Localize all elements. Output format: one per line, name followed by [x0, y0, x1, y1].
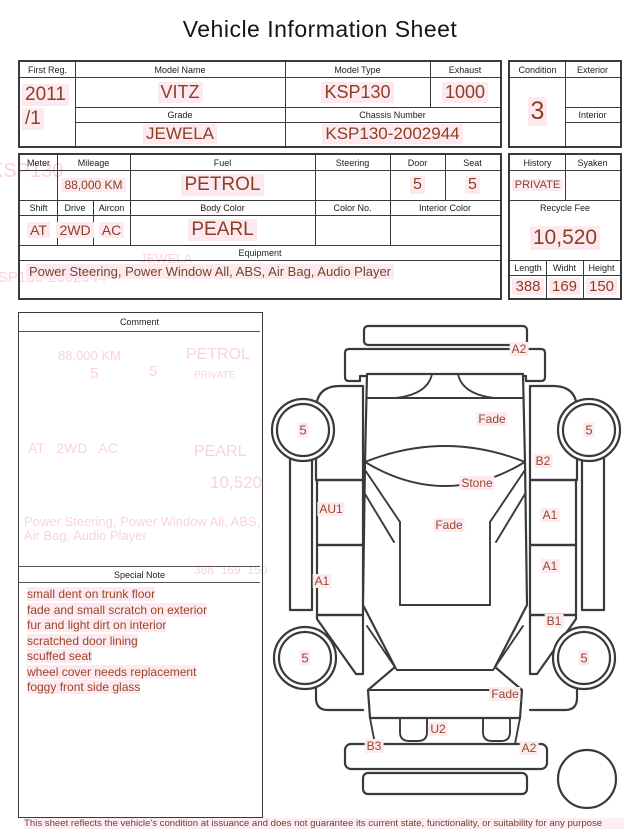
special-note-line: fade and small scratch on exterior: [27, 603, 255, 619]
special-note-line: scratched door lining: [27, 634, 255, 650]
model-type-value: KSP130: [285, 77, 430, 107]
damage-label-a1-rear-left-door: A1: [313, 574, 332, 588]
seat-label: Seat: [445, 155, 500, 170]
wheel-grade-front-right: 5: [583, 423, 594, 438]
color-no-label: Color No.: [315, 200, 390, 215]
model-name-value: VITZ: [75, 77, 285, 107]
damage-label-b1-rear-right-quarter: B1: [545, 614, 564, 628]
fuel-value: PETROL: [130, 170, 315, 200]
recycle-fee-label: Recycle Fee: [510, 200, 620, 215]
damage-label-b3-rear-bumper-left: B3: [365, 739, 384, 753]
interior-label: Interior: [565, 107, 620, 122]
history-label: History: [510, 155, 565, 170]
mileage-label: Mileage: [57, 155, 130, 170]
steering-value: [315, 170, 390, 200]
damage-label-fade-roof: Fade: [433, 518, 464, 532]
damage-label-a1-front-right-door: A1: [541, 508, 560, 522]
meter-label: Meter: [20, 155, 57, 170]
comment-body: [25, 337, 254, 349]
damage-label-a1-rear-right-door: A1: [541, 559, 560, 573]
damage-label-fade-hood: Fade: [476, 412, 507, 426]
vehicle-information-sheet: KSP130 KSP130-2002944 JEWELA 88,000 KM P…: [0, 0, 640, 835]
meter-value: [20, 170, 57, 200]
grade-value: JEWELA: [75, 122, 285, 146]
comment-box: Comment Special Note small dent on trunk…: [18, 312, 263, 818]
mileage-value: 88,000 KM: [57, 170, 130, 200]
special-note-line: wheel cover needs replacement: [27, 665, 255, 681]
damage-label-a2-rear-bumper-right: A2: [520, 741, 539, 755]
car-damage-diagram: A2 Fade 5 5 B2 Stone AU1 A1 Fade A1 A1 B…: [270, 310, 640, 810]
comment-header: Comment: [19, 314, 260, 329]
shift-label: Shift: [20, 200, 57, 215]
drive-value: 2WD: [57, 215, 93, 245]
height-value: 150: [583, 275, 620, 298]
exhaust-value: 1000: [430, 77, 500, 107]
body-color-value: PEARL: [130, 215, 315, 245]
damage-label-b2-front-right-fender: B2: [534, 454, 553, 468]
damage-label-fade-trunk: Fade: [489, 687, 520, 701]
model-name-label: Model Name: [75, 62, 285, 77]
first-reg-label: First Reg.: [20, 62, 75, 77]
equipment-value: Power Steering, Power Window All, ABS, A…: [26, 260, 496, 282]
condition-grade-value: 3: [510, 77, 565, 146]
special-note-line: foggy front side glass: [27, 680, 255, 696]
grade-label: Grade: [75, 107, 285, 122]
car-outline-drawing: [270, 310, 640, 810]
first-reg-value-month: /1: [22, 106, 75, 132]
equipment-label: Equipment: [20, 245, 500, 260]
aircon-value: AC: [93, 215, 130, 245]
special-note-list: small dent on trunk floor fade and small…: [27, 587, 255, 696]
condition-label: Condition: [510, 62, 565, 77]
syaken-label: Syaken: [565, 155, 620, 170]
page-title: Vehicle Information Sheet: [0, 16, 640, 43]
aircon-label: Aircon: [93, 200, 130, 215]
model-type-label: Model Type: [285, 62, 430, 77]
chassis-number-label: Chassis Number: [285, 107, 500, 122]
interior-color-label: Interior Color: [390, 200, 500, 215]
height-label: Height: [583, 260, 620, 275]
width-value: 169: [546, 275, 583, 298]
special-note-line: fur and light dirt on interior: [27, 618, 255, 634]
exterior-label: Exterior: [565, 62, 620, 77]
color-no-value: [315, 215, 390, 245]
disclaimer-text: This sheet reflects the vehicle's condit…: [24, 818, 624, 829]
width-label: Widht: [546, 260, 583, 275]
chassis-number-value: KSP130-2002944: [285, 122, 500, 146]
registration-table: First Reg. Model Name Model Type Exhaust…: [18, 60, 502, 148]
steering-label: Steering: [315, 155, 390, 170]
spec-table: Meter Mileage Fuel Steering Door Seat 88…: [18, 153, 502, 300]
length-value: 388: [510, 275, 546, 298]
condition-table: Condition Exterior 3 Interior: [508, 60, 622, 148]
exterior-grade-value: [565, 77, 620, 107]
drive-label: Drive: [57, 200, 93, 215]
syaken-value: [565, 170, 620, 200]
interior-color-value: [390, 215, 500, 245]
door-label: Door: [390, 155, 445, 170]
exhaust-label: Exhaust: [430, 62, 500, 77]
seat-value: 5: [445, 170, 500, 200]
door-value: 5: [390, 170, 445, 200]
damage-label-u2-rear-bumper: U2: [428, 722, 447, 736]
damage-label-a2-front-bumper: A2: [510, 342, 529, 356]
recycle-fee-value: 10,520: [510, 215, 620, 260]
shift-value: AT: [20, 215, 57, 245]
history-table: History Syaken PRIVATE Recycle Fee 10,52…: [508, 153, 622, 300]
wheel-grade-rear-left: 5: [299, 651, 310, 666]
body-color-label: Body Color: [130, 200, 315, 215]
damage-label-au1-front-left-door: AU1: [317, 502, 344, 516]
history-value: PRIVATE: [510, 170, 565, 200]
wheel-grade-rear-right: 5: [578, 651, 589, 666]
wheel-grade-front-left: 5: [297, 423, 308, 438]
special-note-line: scuffed seat: [27, 649, 255, 665]
damage-label-stone-windshield: Stone: [459, 476, 494, 490]
special-note-header: Special Note: [19, 568, 260, 581]
fuel-label: Fuel: [130, 155, 315, 170]
special-note-line: small dent on trunk floor: [27, 587, 255, 603]
interior-grade-value: [565, 122, 620, 146]
length-label: Length: [510, 260, 546, 275]
